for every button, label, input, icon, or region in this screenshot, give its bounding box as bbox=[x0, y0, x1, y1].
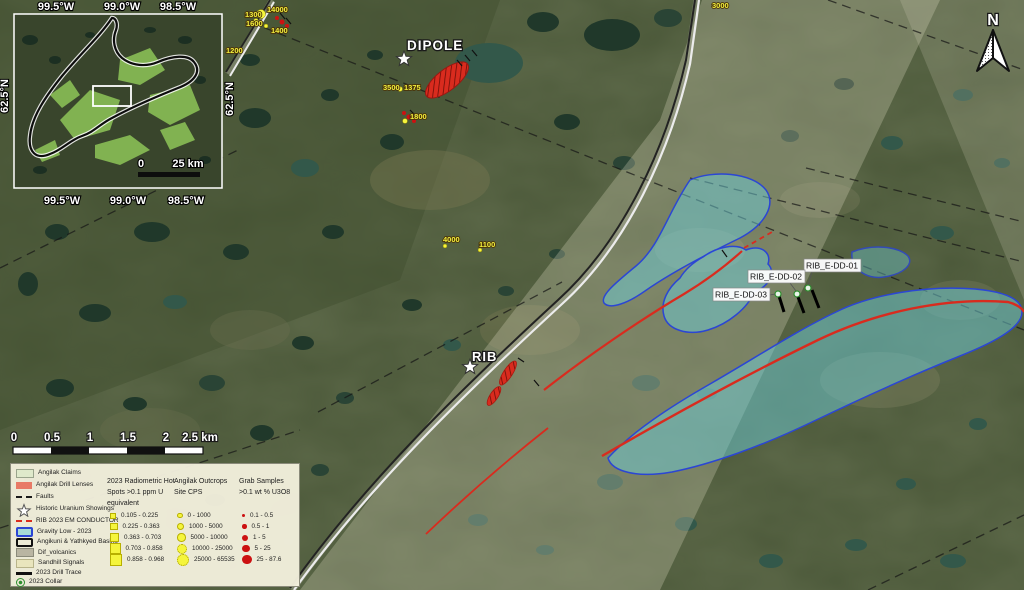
fault-line-icon bbox=[16, 496, 32, 498]
svg-text:62.5°N: 62.5°N bbox=[224, 82, 236, 116]
spot-label: 1100 bbox=[479, 240, 495, 249]
svg-text:99.0°W: 99.0°W bbox=[104, 1, 141, 13]
yellow-square-icon bbox=[110, 533, 119, 542]
drill-label: RIB_E-DD-02 bbox=[750, 272, 802, 282]
yellow-square-icon bbox=[110, 523, 118, 531]
drill-collar bbox=[794, 291, 800, 297]
svg-text:0: 0 bbox=[11, 432, 17, 444]
red-dot-icon bbox=[242, 514, 245, 517]
svg-text:2.5 km: 2.5 km bbox=[182, 432, 218, 444]
spot-label: 1400 bbox=[271, 26, 288, 35]
star-icon bbox=[16, 503, 32, 517]
yellow-sun-icon bbox=[177, 554, 189, 566]
svg-text:99.0°W: 99.0°W bbox=[110, 195, 147, 207]
drill-trace-line-icon bbox=[16, 572, 32, 575]
legend-item-collar: 2023 Collar bbox=[16, 578, 138, 587]
signals-swatch-icon bbox=[16, 559, 34, 568]
radiometric-classes: 0.105 - 0.225 0.225 - 0.363 0.363 - 0.70… bbox=[110, 510, 164, 565]
yellow-circle-icon bbox=[177, 513, 183, 519]
legend-panel: Angilak Claims Angilak Drill Lenses Faul… bbox=[10, 463, 300, 587]
yellow-circle-icon bbox=[177, 533, 186, 542]
em-conductor-line-icon bbox=[16, 520, 32, 522]
spot-label: 4000 bbox=[443, 235, 460, 244]
svg-text:1.5: 1.5 bbox=[120, 432, 137, 444]
svg-text:1: 1 bbox=[87, 432, 94, 444]
svg-text:62.5°N: 62.5°N bbox=[0, 79, 11, 113]
red-dot-icon bbox=[242, 524, 247, 529]
yellow-square-icon bbox=[110, 554, 122, 566]
red-dot-icon bbox=[242, 535, 248, 541]
drill-label: RIB_E-DD-03 bbox=[715, 290, 767, 300]
svg-text:99.5°W: 99.5°W bbox=[44, 195, 81, 207]
yellow-square-icon bbox=[110, 543, 121, 554]
yellow-sun-icon bbox=[177, 544, 187, 554]
svg-text:98.5°W: 98.5°W bbox=[168, 195, 205, 207]
svg-text:99.5°W: 99.5°W bbox=[38, 1, 75, 13]
drill-lenses-swatch-icon bbox=[16, 482, 32, 489]
claims-swatch-icon bbox=[16, 469, 34, 478]
inset-locator-map: 0 25 km 99.5°W 99.0°W 98.5°W 99.5°W 99.0… bbox=[0, 0, 240, 212]
svg-text:25 km: 25 km bbox=[172, 158, 203, 170]
spot-label: 1375 bbox=[404, 83, 421, 92]
spot-label: 1600 bbox=[246, 19, 263, 28]
cps-header: Angilak Outcrops Site CPS bbox=[174, 476, 227, 498]
spot-label: 14000 bbox=[267, 5, 288, 14]
radiometric-header: 2023 Radiometric Hot Spots >0.1 ppm U eq… bbox=[107, 476, 175, 509]
red-dot-icon bbox=[242, 545, 250, 553]
rib-label: RIB bbox=[472, 349, 497, 364]
spot-label: 3500 bbox=[383, 83, 400, 92]
dipole-label: DIPOLE bbox=[407, 38, 463, 53]
north-label: N bbox=[987, 12, 999, 29]
svg-text:0.5: 0.5 bbox=[44, 432, 61, 444]
volcanics-swatch-icon bbox=[16, 548, 34, 557]
red-dot-icon bbox=[242, 555, 252, 565]
grab-classes: 0.1 - 0.5 0.5 - 1 1 - 5 5 - 25 25 - 87.6 bbox=[242, 510, 281, 565]
drill-label: RIB_E-DD-01 bbox=[806, 261, 858, 271]
collar-circle-icon bbox=[16, 578, 25, 587]
spot-label: 1800 bbox=[410, 112, 427, 121]
svg-text:98.5°W: 98.5°W bbox=[160, 1, 197, 13]
svg-text:2: 2 bbox=[163, 432, 169, 444]
grab-header: Grab Samples >0.1 wt % U3O8 bbox=[239, 476, 290, 498]
gravity-low-swatch-icon bbox=[16, 527, 33, 537]
legend-item-drill-trace: 2023 Drill Trace bbox=[16, 569, 138, 578]
yellow-circle-icon bbox=[177, 523, 184, 530]
spot-label: 1300 bbox=[245, 10, 262, 19]
yellow-square-icon bbox=[110, 513, 116, 519]
spot-label: 3000 bbox=[712, 1, 729, 10]
cps-classes: 0 - 1000 1000 - 5000 5000 - 10000 10000 … bbox=[177, 510, 235, 565]
map-stage: 1300 14000 1600 1400 1200 3000 3500 1375… bbox=[0, 0, 1024, 590]
basins-outline-icon bbox=[16, 538, 33, 547]
drill-collar bbox=[775, 291, 781, 297]
svg-text:0: 0 bbox=[138, 158, 144, 170]
drill-collar bbox=[805, 285, 811, 291]
